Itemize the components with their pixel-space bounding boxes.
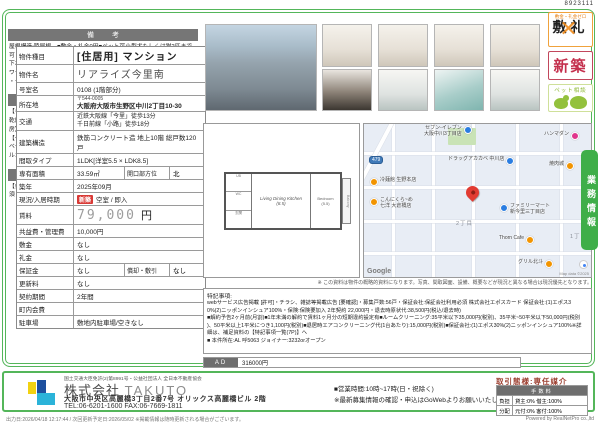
property-detail-column: 物件種目 [住居用] マンション 物件名 リアライズ今里南 号室名 0108 (… xyxy=(8,23,198,202)
restaurant-icon xyxy=(566,162,574,170)
business-info-tab[interactable]: 業務情報 xyxy=(581,150,598,250)
row-value-2: なし xyxy=(170,264,205,276)
cross-icon: ✕ xyxy=(550,18,591,33)
row-value: リアライズ今里南 xyxy=(74,65,205,82)
washbasin-photo xyxy=(490,69,540,111)
row-label: 築年 xyxy=(17,180,74,192)
area-label-2chome: 2丁目 xyxy=(456,219,473,227)
convenience-store-icon xyxy=(500,204,508,212)
row-label: 現況/入居時期 xyxy=(17,193,74,205)
table-row-status: 現況/入居時期 新築 空室 / 即入 xyxy=(17,192,205,205)
row-value: 1LDK[洋室5.5 × LDK8.5] xyxy=(74,154,205,166)
restaurant-icon xyxy=(370,178,378,186)
powered-by: Powered by RealNetPro co.,ltd xyxy=(526,416,594,422)
convenience-store-icon xyxy=(464,126,472,134)
stamp-chars: 敷礼 ✕ xyxy=(550,20,591,35)
floor-plan-wet-area: UB WC 玄関 xyxy=(226,174,252,228)
row-value: 新築 空室 / 即入 xyxy=(74,193,205,205)
row-value-2: 北 xyxy=(170,167,205,179)
row-label: 所在地 xyxy=(17,96,74,111)
table-row-rent: 賃料 79,000 円 xyxy=(17,205,205,224)
map-poi-ramen[interactable]: こんにくら~め 七洋 大倉橋店 xyxy=(370,198,415,210)
map-poi-seven-eleven[interactable]: セブン-イレブン 大阪中川3丁目店 xyxy=(422,126,472,138)
table-row-key-money: 礼金 なし xyxy=(17,250,205,263)
no-deposit-stamp: 敷金・礼金ゼロ 敷礼 ✕ xyxy=(548,12,593,47)
bedroom-size: (5.5) xyxy=(321,201,329,206)
map-credit: Map data ©2025 xyxy=(559,271,589,276)
special-notes-title: 特記事項: xyxy=(207,291,588,300)
output-date-note: 出力日:2026/04/18 12:17:44 / 次回更新予定日:2026/0… xyxy=(6,416,244,423)
map-poi-yakiniku[interactable]: 焼肉城 xyxy=(547,162,574,170)
stamp-title: ペット相談 xyxy=(550,86,591,94)
row-label: 敷金 xyxy=(17,238,74,250)
access-line2: 千日前線「小路」徒歩18分 xyxy=(77,121,150,129)
status-text: 空室 / 即入 xyxy=(96,194,127,204)
fee-table: 手数料 負担 貸主:0% 借主:100% 分配 元付:0% 客付:100% xyxy=(496,385,588,416)
address-text: 大阪府大阪市生野区中川2丁目10-30 xyxy=(77,103,182,111)
restaurant-icon xyxy=(571,132,579,140)
table-row-room-number: 号室名 0108 (1階部分) xyxy=(17,82,205,95)
fee-table-header: 手数料 xyxy=(497,386,587,395)
cafe-icon xyxy=(526,236,534,244)
row-value: 近鉄大阪線「今里」徒歩13分 千日前線「小路」徒歩18分 xyxy=(74,112,205,130)
table-row-contract-term: 契約期間 2年間 xyxy=(17,289,205,302)
newly-built-stamp: 新築 xyxy=(548,51,593,80)
agency-footer: 国土交通大臣免許(2)第8991号・公益社団法人 全日本不動産協会 株式会社 T… xyxy=(2,371,595,412)
table-row-layout-type: 間取タイプ 1LDK[洋室5.5 × LDK8.5] xyxy=(17,153,205,166)
fee-table-row: 負担 貸主:0% 借主:100% xyxy=(497,395,587,405)
row-value: なし xyxy=(74,277,205,289)
row-value: 2年間 xyxy=(74,290,205,302)
company-telfax: TEL:06-6201-1600 FAX:06-7669-1811 xyxy=(64,403,183,410)
row-value xyxy=(74,303,205,315)
map-location-button[interactable] xyxy=(579,260,588,269)
drugstore-icon xyxy=(506,157,514,165)
map-poi-thorn-cafe[interactable]: Thorn Cafe xyxy=(497,236,534,244)
table-row-address: 所在地 〒544-0005 大阪府大阪市生野区中川2丁目10-30 xyxy=(17,95,205,111)
row-label: 更新料 xyxy=(17,277,74,289)
location-map[interactable]: 479 セブン-イレブン 大阪中川3丁目店 ハンマダン ドラッグアカカベ 中川店… xyxy=(363,123,592,278)
row-value: 33.59㎡ xyxy=(74,167,124,179)
row-value: [住居用] マンション xyxy=(74,47,205,64)
row-value: 10,000円 xyxy=(74,225,205,237)
map-poi-family-mart[interactable]: ファミリーマート 新今里三丁目店 xyxy=(500,204,552,216)
business-hours: ■営業時間:10時~17時(日・祝除く) ※最新募集情報の確認・申込はGoWeb… xyxy=(334,384,517,406)
hours-line: ■営業時間:10時~17時(日・祝除く) xyxy=(334,384,517,395)
table-row-guarantee: 保証金 なし 償却・敷引 なし xyxy=(17,263,205,276)
row-label: 物件名 xyxy=(17,65,74,82)
hallway-photo xyxy=(490,24,540,67)
bathroom-photo xyxy=(378,69,428,111)
ad-fee-value: 316000円 xyxy=(238,358,520,367)
rent-unit: 円 xyxy=(141,207,152,223)
fee-row-label: 分配 xyxy=(497,406,513,415)
fee-row-label: 負担 xyxy=(497,396,513,405)
map-poi-reimenkan[interactable]: 冷麺館 生野本店 xyxy=(370,178,418,186)
floor-plan-box: UB WC 玄関 Living Dining Kitchen (8.5) Bed… xyxy=(203,123,360,278)
table-row-renewal-fee: 更新料 なし xyxy=(17,276,205,289)
row-label: 賃料 xyxy=(17,206,74,224)
rent-amount: 79,000 xyxy=(77,208,136,223)
access-line1: 近鉄大阪線「今里」徒歩13分 xyxy=(77,113,156,121)
fee-row-value: 元付:0% 客付:100% xyxy=(513,406,587,415)
closet-photo xyxy=(434,24,484,67)
row-value: 〒544-0005 大阪府大阪市生野区中川2丁目10-30 xyxy=(74,96,205,111)
floor-plan-toilet-label: WC xyxy=(226,192,251,210)
row-value: なし xyxy=(74,264,124,276)
new-build-badge: 新築 xyxy=(77,195,93,204)
row-label: 駐車場 xyxy=(17,316,74,328)
route-badge: 479 xyxy=(369,156,383,164)
row-value: 79,000 円 xyxy=(74,206,205,224)
fee-row-value: 貸主:0% 借主:100% xyxy=(513,396,587,405)
restaurant-icon xyxy=(370,198,378,206)
fee-table-row: 分配 元付:0% 客付:100% xyxy=(497,405,587,415)
google-logo: Google xyxy=(367,268,391,275)
row-value: なし xyxy=(74,238,205,250)
map-poi-drugstore[interactable]: ドラッグアカカベ 中川店 xyxy=(446,157,514,165)
floor-plan-entry-label: 玄関 xyxy=(226,211,251,228)
row-value: 0108 (1階部分) xyxy=(74,83,205,95)
table-row-property-name: 物件名 リアライズ今里南 xyxy=(17,64,205,82)
row-label: 契約期間 xyxy=(17,290,74,302)
takuto-logo xyxy=(28,380,56,406)
row-label: 号室名 xyxy=(17,83,74,95)
table-row-deposit: 敷金 なし xyxy=(17,237,205,250)
row-value: 敷地内駐車場/空きなし xyxy=(74,316,205,328)
floor-plan-bedroom: Bedroom (5.5) xyxy=(310,174,340,228)
application-note: ※最新募集情報の確認・申込はGoWebよりお願いいたします。 xyxy=(334,395,517,406)
pet-negotiable-stamp: ペット相談 xyxy=(548,84,593,112)
row-label: 町内会費 xyxy=(17,303,74,315)
document-number: 8923111 xyxy=(565,1,594,7)
row-value: 鉄筋コンクリート造 地上10階 総戸数120戸 xyxy=(74,131,205,153)
table-row-access: 交通 近鉄大阪線「今里」徒歩13分 千日前線「小路」徒歩18分 xyxy=(17,111,205,130)
table-row-property-type: 物件種目 [住居用] マンション xyxy=(17,47,205,64)
remarks-header: 備 考 xyxy=(8,29,198,41)
kitchen-photo xyxy=(322,69,372,111)
table-row-built-year: 築年 2025年09月 xyxy=(17,179,205,192)
row-label-2: 開口部方位 xyxy=(124,167,170,179)
table-row-structure: 建築構造 鉄筋コンクリート造 地上10階 総戸数120戸 xyxy=(17,130,205,153)
row-label: 礼金 xyxy=(17,251,74,263)
property-table: 物件種目 [住居用] マンション 物件名 リアライズ今里南 号室名 0108 (… xyxy=(16,46,206,329)
floor-plan-bath-label: UB xyxy=(226,174,251,192)
row-label: 専有面積 xyxy=(17,167,74,179)
ad-fee-label: AD xyxy=(204,358,238,367)
building-exterior-photo xyxy=(205,24,317,111)
window-photo xyxy=(378,24,428,67)
disclaimer-text: ※ この資料は物件の概略的資料になります。写真、間取図面、設備、概要などが現況と… xyxy=(203,279,592,286)
table-row-floor-area: 専有面積 33.59㎡ 開口部方位 北 xyxy=(17,166,205,179)
floor-plan-ldk: Living Dining Kitchen (8.5) xyxy=(252,174,310,228)
row-label: 間取タイプ xyxy=(17,154,74,166)
toilet-photo xyxy=(434,69,484,111)
living-room-photo xyxy=(322,24,372,67)
map-poi-grill[interactable]: グリル北斗 xyxy=(516,260,553,268)
stamp-label: 新築 xyxy=(553,55,587,76)
map-poi-hanmadan[interactable]: ハンマダン xyxy=(542,132,579,140)
ldk-size: (8.5) xyxy=(276,201,285,206)
row-value: 2025年09月 xyxy=(74,180,205,192)
restaurant-icon xyxy=(545,260,553,268)
pet-silhouette-icon xyxy=(550,94,591,110)
ad-fee-bar: AD 316000円 xyxy=(203,357,521,368)
floor-plan-drawing: UB WC 玄関 Living Dining Kitchen (8.5) Bed… xyxy=(224,172,342,230)
table-row-neighborhood-fee: 町内会費 xyxy=(17,302,205,315)
floor-plan-balcony: Balcony xyxy=(342,178,351,224)
row-label: 交通 xyxy=(17,112,74,130)
table-row-maintenance-fee: 共益費・管理費 10,000円 xyxy=(17,224,205,237)
special-notes-box: 特記事項: webサービス広告掲載 [許可]・チラシ、雑誌等掲載広告 [要確認]… xyxy=(203,288,592,354)
row-label: 建築構造 xyxy=(17,131,74,153)
special-notes-body: webサービス広告掲載 [許可]・チラシ、雑誌等掲載広告 [要確認]・募集戸数:… xyxy=(207,300,588,345)
row-label: 保証金 xyxy=(17,264,74,276)
table-row-parking: 駐車場 敷地内駐車場/空きなし xyxy=(17,315,205,328)
property-flyer-page: 8923111 物件種目 [住居用] マンション 物件名 リアライズ今里南 号室… xyxy=(0,0,600,426)
row-label: 物件種目 xyxy=(17,47,74,64)
row-label-2: 償却・敷引 xyxy=(124,264,170,276)
row-value: なし xyxy=(74,251,205,263)
row-label: 共益費・管理費 xyxy=(17,225,74,237)
